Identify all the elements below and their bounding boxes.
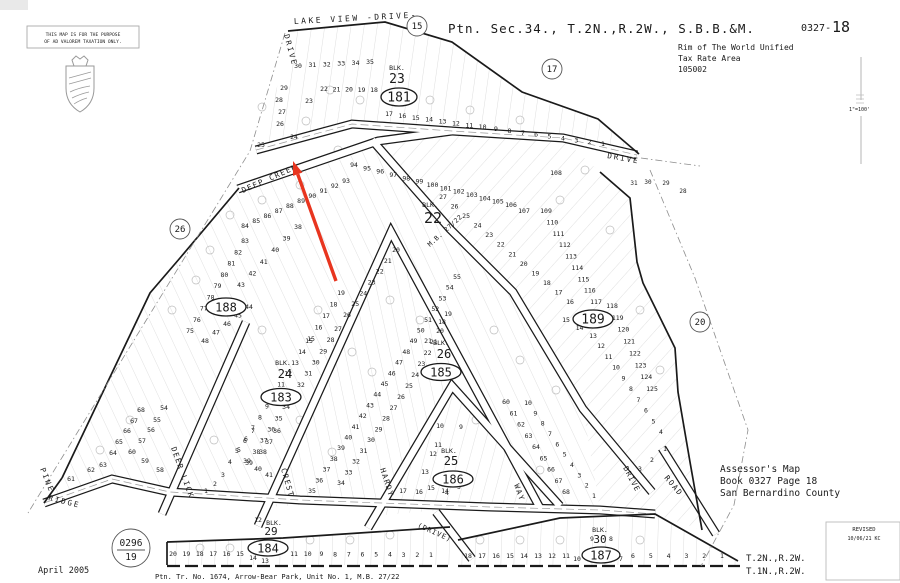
blk-number: 25 — [444, 454, 458, 468]
parcel-number: 60 — [502, 398, 510, 406]
parcel-number: 28 — [275, 96, 283, 104]
parcel-number: 18 — [370, 86, 378, 94]
parcel-number: 65 — [115, 438, 123, 446]
parcel-number: 8 — [333, 550, 337, 558]
parcel-number: 13 — [589, 332, 597, 340]
parcel-number: 23 — [485, 231, 493, 239]
parcel-number: 5 — [548, 133, 552, 141]
parcel-number: 24 — [474, 222, 482, 230]
road-label: LAKE VIEW -DRIVE- — [294, 10, 419, 25]
parcel-number: 3 — [577, 471, 581, 479]
assessor-block-number: 185 — [430, 365, 452, 379]
parcel-number: 18 — [464, 552, 472, 560]
tax-area-line2: Tax Rate Area — [678, 54, 741, 63]
parcel-number: 7 — [548, 430, 552, 438]
parcel-number: 31 — [304, 370, 312, 378]
parcel-number: 46 — [388, 369, 396, 377]
blk-number: 22 — [424, 209, 442, 227]
parcel-number: 1 — [601, 140, 605, 148]
parcel-number: 26 — [451, 203, 459, 211]
parcel-number: 20 — [392, 246, 400, 254]
parcel-number: 60 — [128, 448, 136, 456]
parcel-number: 8 — [258, 413, 262, 421]
parcel-number: 17 — [385, 110, 393, 118]
parcel-number: 17 — [399, 487, 407, 495]
parcel-number: 22 — [320, 85, 328, 93]
parcel-number: 56 — [147, 426, 155, 434]
parcel-number: 107 — [518, 207, 530, 215]
parcel-number: 5 — [649, 552, 653, 560]
parcel-number: 99 — [415, 178, 423, 186]
parcel-number: 122 — [629, 349, 641, 357]
parcel-number: 36 — [315, 476, 323, 484]
parcel-number: 24 — [411, 371, 419, 379]
parcel-number: 37 — [323, 466, 331, 474]
parcel-number: 2 — [415, 551, 419, 559]
parcel-number: 125 — [646, 385, 658, 393]
parcel-number: 19 — [182, 550, 190, 558]
parcel-number: 12 — [452, 119, 460, 127]
parcel-number: 21 — [424, 337, 432, 345]
parcel-number: 41 — [352, 423, 360, 431]
parcel-number: 32 — [352, 458, 360, 466]
parcel-number: 104 — [479, 194, 491, 202]
adjacent-lot-number: 29 — [662, 180, 670, 187]
parcel-number: 26 — [397, 393, 405, 401]
tax-area-line3: 105002 — [678, 65, 707, 74]
blk-number: 23 — [389, 72, 405, 87]
parcel-number: 41 — [265, 471, 273, 479]
parcel-number: 1 — [720, 552, 724, 560]
parcel-number: 15 — [562, 316, 570, 324]
parcel-number: 54 — [446, 284, 454, 292]
assessor-block-number: 184 — [257, 541, 279, 555]
parcel-number: 1 — [592, 492, 596, 500]
parcel-number: 35 — [275, 414, 283, 422]
parcel-number: 32 — [297, 381, 305, 389]
scale-label: 1"=100' — [849, 107, 870, 113]
parcel-number: 2 — [213, 480, 217, 488]
book-code: 0327- — [801, 23, 831, 34]
parcel-number: 86 — [263, 212, 271, 220]
parcel-number: 119 — [612, 314, 624, 322]
parcel-number: 124 — [640, 373, 652, 381]
parcel-number: 55 — [153, 416, 161, 424]
parcel-number: 68 — [137, 406, 145, 414]
assessor-block-number: 187 — [590, 548, 612, 562]
parcel-number: 6 — [243, 437, 247, 445]
parcel-number: 23 — [368, 279, 376, 287]
parcel-number: 18 — [543, 279, 551, 287]
assessor-map-page: THIS MAP IS FOR THE PURPOSE OF AD VALORE… — [0, 0, 900, 583]
parcel-number: 14 — [520, 552, 528, 560]
parcel-number: 54 — [160, 404, 168, 412]
parcel-number: 105 — [492, 198, 504, 206]
parcel-number: 15 — [506, 552, 514, 560]
parcel-number: 53 — [439, 294, 447, 302]
parcel-number: 81 — [227, 260, 235, 268]
parcel-number: 31 — [360, 447, 368, 455]
parcel-number: 13 — [421, 468, 429, 476]
parcel-number: 91 — [320, 187, 328, 195]
parcel-number: 111 — [553, 230, 565, 238]
parcel-number: 79 — [214, 282, 222, 290]
assessor-block-number: 183 — [270, 390, 292, 404]
parcel-number: 32 — [323, 60, 331, 68]
parcel-number: 8 — [629, 385, 633, 393]
page-ref-number: 15 — [412, 22, 423, 32]
parcel-number: 7 — [251, 427, 255, 435]
tax-area-line1: Rim of The World Unified — [678, 43, 794, 52]
page-ref-number: 20 — [695, 318, 706, 328]
map-date: April 2005 — [38, 566, 89, 576]
parcel-map: THIS MAP IS FOR THE PURPOSE OF AD VALORE… — [0, 0, 900, 583]
blk-number: 29 — [264, 525, 277, 538]
parcel-number: 3 — [574, 136, 578, 144]
parcel-number: 5 — [652, 417, 656, 425]
parcel-number: 41 — [260, 258, 268, 266]
parcel-number: 40 — [271, 246, 279, 254]
parcel-number: 22 — [497, 241, 505, 249]
parcel-number: 19 — [531, 269, 539, 277]
parcel-number: 35 — [308, 487, 316, 495]
parcel-number: 22 — [424, 349, 432, 357]
parcel-number: 16 — [492, 552, 500, 560]
parcel-number: 120 — [618, 326, 630, 334]
parcel-number: 10 — [573, 555, 581, 563]
parcel-number: 39 — [337, 444, 345, 452]
parcel-number: 9 — [533, 409, 537, 417]
parcel-number: 20 — [520, 260, 528, 268]
parcel-number: 20 — [436, 327, 444, 335]
assessor-block-number: 181 — [387, 91, 410, 106]
adjacent-lot-number: 30 — [644, 179, 652, 186]
parcel-number: 37 — [265, 438, 273, 446]
parcel-number: 59 — [141, 457, 149, 465]
parcel-number: 75 — [186, 327, 194, 335]
parcel-number: 27 — [278, 108, 286, 116]
blk-label: BLK. — [422, 201, 438, 209]
parcel-number: 88 — [286, 202, 294, 210]
road-label: PINE — [38, 466, 56, 494]
parcel-number: 4 — [659, 428, 663, 436]
parcel-number: 115 — [578, 275, 590, 283]
revision-label: REVISED — [852, 527, 875, 533]
blk-label: BLK. — [389, 64, 405, 72]
parcel-number: 84 — [241, 222, 249, 230]
parcel-number: 21 — [384, 257, 392, 265]
book-ref-book: 0296 — [120, 538, 143, 549]
book-ref-page: 19 — [125, 552, 137, 563]
parcel-number: 28 — [327, 336, 335, 344]
adjacent-lot-number: 31 — [630, 180, 638, 187]
parcel-number: 13 — [439, 118, 447, 126]
parcel-number: 15 — [427, 484, 435, 492]
parcel-number: 101 — [440, 184, 452, 192]
parcel-number: 11 — [465, 121, 473, 129]
parcel-number: 21 — [333, 85, 341, 93]
parcel-number: 27 — [439, 193, 447, 201]
parcel-number: 112 — [559, 241, 571, 249]
parcel-number: 5 — [563, 451, 567, 459]
parcel-number: 45 — [381, 380, 389, 388]
township-line2: T.1N.,R.2W. — [746, 567, 806, 577]
parcel-number: 18 — [196, 550, 204, 558]
parcel-number: 100 — [427, 181, 439, 189]
parcel-number: 83 — [241, 237, 249, 245]
assessor-block-number: 188 — [215, 300, 237, 314]
parcel-number: 50 — [417, 327, 425, 335]
parcel-number: 9 — [622, 374, 626, 382]
scan-artifact — [0, 0, 28, 10]
parcel-number: 12 — [597, 342, 605, 350]
parcel-number: 94 — [350, 161, 358, 169]
parcel-number: 48 — [402, 348, 410, 356]
parcel-number: 10 — [524, 399, 532, 407]
parcel-number: 98 — [402, 174, 410, 182]
parcel-number: 15 — [412, 114, 420, 122]
parcel-number: 5 — [374, 551, 378, 559]
parcel-number: 12 — [429, 450, 437, 458]
parcel-number: 62 — [87, 466, 95, 474]
parcel-number: 14 — [425, 116, 433, 124]
parcel-number: 33 — [337, 60, 345, 68]
parcel-number: 103 — [466, 191, 478, 199]
parcel-number: 20 — [169, 550, 177, 558]
parcel-number: 28 — [382, 415, 390, 423]
parcel-number: 82 — [234, 248, 242, 256]
county-seal — [66, 56, 94, 112]
parcel-number: 89 — [297, 197, 305, 205]
parcel-number: 16 — [315, 324, 323, 332]
parcel-number: 12 — [254, 516, 262, 524]
parcel-number: 46 — [223, 320, 231, 328]
parcel-number: 20 — [345, 86, 353, 94]
parcel-number: 30 — [367, 436, 375, 444]
parcel-number: 30 — [312, 359, 320, 367]
parcel-number: 17 — [209, 550, 217, 558]
parcel-number: 42 — [359, 412, 367, 420]
parcel-number: 39 — [243, 457, 251, 465]
adjacent-lot-number: 28 — [679, 188, 687, 195]
parcel-number: 102 — [453, 188, 465, 196]
parcel-number: 10 — [304, 550, 312, 558]
blk-label: BLK. — [433, 339, 449, 347]
parcel-number: 121 — [623, 338, 635, 346]
parcel-number: 25 — [462, 212, 470, 220]
parcel-number: 109 — [540, 207, 552, 215]
parcel-number: 40 — [344, 434, 352, 442]
parcel-number: 14 — [298, 348, 306, 356]
parcel-number: 8 — [541, 420, 545, 428]
parcel-number: 26 — [343, 311, 351, 319]
parcel-number: 5 — [235, 447, 239, 455]
parcel-number: 17 — [322, 312, 330, 320]
parcel-number: 66 — [547, 466, 555, 474]
parcel-number: 31 — [308, 61, 316, 69]
parcel-number: 25 — [257, 141, 265, 149]
blk-number: 26 — [437, 347, 451, 361]
parcel-number: 8 — [609, 535, 613, 543]
parcel-number: 1 — [663, 445, 667, 453]
parcel-number: 2 — [650, 456, 654, 464]
parcel-number: 13 — [291, 359, 299, 367]
parcel-number: 40 — [254, 465, 262, 473]
parcel-number: 19 — [444, 310, 452, 318]
parcel-number: 29 — [375, 425, 383, 433]
map-title: Ptn. Sec.34., T.2N.,R.2W., S.B.B.&M. — [448, 21, 755, 36]
parcel-number: 63 — [525, 432, 533, 440]
blk-number: 24 — [278, 367, 292, 381]
parcel-number: 87 — [275, 207, 283, 215]
parcel-number: 113 — [565, 253, 577, 261]
assessor-line1: Assessor's Map — [720, 464, 800, 475]
parcel-number: 110 — [546, 218, 558, 226]
parcel-number: 8 — [507, 127, 511, 135]
assessor-line3: San Bernardino County — [720, 488, 840, 499]
parcel-number: 95 — [363, 164, 371, 172]
parcel-number: 16 — [415, 488, 423, 496]
parcel-number: 6 — [631, 552, 635, 560]
parcel-number: 68 — [562, 488, 570, 496]
parcel-number: 55 — [453, 273, 461, 281]
parcel-number: 27 — [334, 325, 342, 333]
parcel-number: 51 — [424, 316, 432, 324]
parcel-number: 2 — [702, 552, 706, 560]
parcel-number: 58 — [156, 466, 164, 474]
parcel-number: 6 — [534, 131, 538, 139]
parcel-number: 17 — [555, 289, 563, 297]
parcel-number: 61 — [67, 475, 75, 483]
parcel-number: 19 — [337, 289, 345, 297]
parcel-number: 1 — [429, 551, 433, 559]
parcel-number: 25 — [351, 300, 359, 308]
parcel-number: 116 — [584, 287, 596, 295]
page-ref-number: 17 — [547, 65, 558, 75]
parcel-number: 4 — [228, 458, 232, 466]
parcel-number: 16 — [398, 112, 406, 120]
parcel-number: 6 — [555, 440, 559, 448]
tract-note: Ptn. Tr. No. 1674, Arrow-Bear Park, Unit… — [155, 573, 399, 581]
parcel-number: 36 — [273, 427, 281, 435]
parcel-number: 85 — [252, 217, 260, 225]
parcel-number: 3 — [638, 465, 642, 473]
parcel-number: 7 — [347, 550, 351, 558]
parcel-number: 2 — [585, 482, 589, 490]
parcel-number: 29 — [319, 347, 327, 355]
assessor-block-number: 186 — [442, 472, 464, 486]
parcel-number: 39 — [283, 235, 291, 243]
parcel-number: 106 — [505, 201, 517, 209]
parcel-number: 38 — [259, 448, 267, 456]
parcel-number: 4 — [388, 551, 392, 559]
parcel-number: 9 — [319, 550, 323, 558]
parcel-number: 15 — [236, 550, 244, 558]
parcel-number: 34 — [352, 59, 360, 67]
parcel-number: 80 — [220, 271, 228, 279]
parcel-number: 2 — [588, 138, 592, 146]
parcel-number: 43 — [237, 281, 245, 289]
parcel-number: 7 — [521, 129, 525, 137]
parcel-number: 7 — [637, 396, 641, 404]
adjacent-lot-numbers: 31302928 — [630, 179, 687, 195]
parcel-number: 65 — [540, 454, 548, 462]
parcel-number: 15 — [305, 337, 313, 345]
parcel-number: 4 — [667, 552, 671, 560]
parcel-number: 49 — [410, 337, 418, 345]
parcel-number: 11 — [605, 353, 613, 361]
parcel-number: 33 — [345, 468, 353, 476]
parcel-number: 3 — [221, 471, 225, 479]
parcel-number: 123 — [635, 361, 647, 369]
parcel-number: 61 — [510, 409, 518, 417]
parcel-number: 13 — [261, 557, 269, 565]
parcel-number: 97 — [389, 171, 397, 179]
parcel-number: 64 — [109, 449, 117, 457]
parcel-number: 25 — [405, 382, 413, 390]
parcel-number: 19 — [358, 86, 366, 94]
parcel-number: 42 — [248, 269, 256, 277]
parcel-number: 44 — [373, 391, 381, 399]
parcel-number: 3 — [684, 552, 688, 560]
parcel-number: 6 — [361, 551, 365, 559]
parcel-number: 63 — [99, 461, 107, 469]
parcel-number: 93 — [342, 177, 350, 185]
parcel-number: 38 — [294, 223, 302, 231]
assessor-block-number: 189 — [581, 313, 604, 328]
parcel-number: 114 — [571, 264, 583, 272]
disclaimer-line2: OF AD VALOREM TAXATION ONLY. — [44, 39, 121, 45]
parcel-number: 62 — [517, 421, 525, 429]
parcel-number: 67 — [555, 477, 563, 485]
blk-label: BLK. — [275, 359, 291, 367]
parcel-number: 90 — [308, 192, 316, 200]
parcel-number: 10 — [479, 123, 487, 131]
parcel-number: 30 — [294, 62, 302, 70]
parcel-number: 10 — [436, 422, 444, 430]
parcel-number: 3 — [402, 551, 406, 559]
parcel-number: 48 — [201, 337, 209, 345]
parcel-number: 6 — [644, 407, 648, 415]
township-line1: T.2N.,R.2W. — [746, 554, 806, 564]
parcel-number: 23 — [305, 97, 313, 105]
blk-number: 30 — [593, 533, 606, 546]
parcel-number: 16 — [566, 298, 574, 306]
parcel-number: 14 — [249, 554, 257, 562]
assessor-line2: Book 0327 Page 18 — [720, 476, 818, 487]
parcel-number: 1 — [204, 487, 208, 495]
parcel-number: 43 — [366, 401, 374, 409]
parcel-number: 11 — [562, 552, 570, 560]
parcel-number: 11 — [277, 381, 285, 389]
parcel-number: 12 — [548, 552, 556, 560]
parcel-number: 4 — [570, 461, 574, 469]
parcel-number: 38 — [330, 455, 338, 463]
parcel-number: 9 — [459, 423, 463, 431]
parcel-number: 18 — [438, 318, 446, 326]
parcel-number: 26 — [276, 120, 284, 128]
parcel-number: 13 — [534, 552, 542, 560]
parcel-number: 4 — [561, 134, 565, 142]
parcel-number: 22 — [376, 268, 384, 276]
revision-entry: 10/06/21 KC — [847, 536, 880, 542]
parcel-number: 17 — [478, 552, 486, 560]
parcel-number: 92 — [331, 182, 339, 190]
parcel-number: 66 — [123, 427, 131, 435]
parcel-number: 11 — [290, 550, 298, 558]
parcel-number: 76 — [193, 316, 201, 324]
parcel-number: 67 — [130, 417, 138, 425]
